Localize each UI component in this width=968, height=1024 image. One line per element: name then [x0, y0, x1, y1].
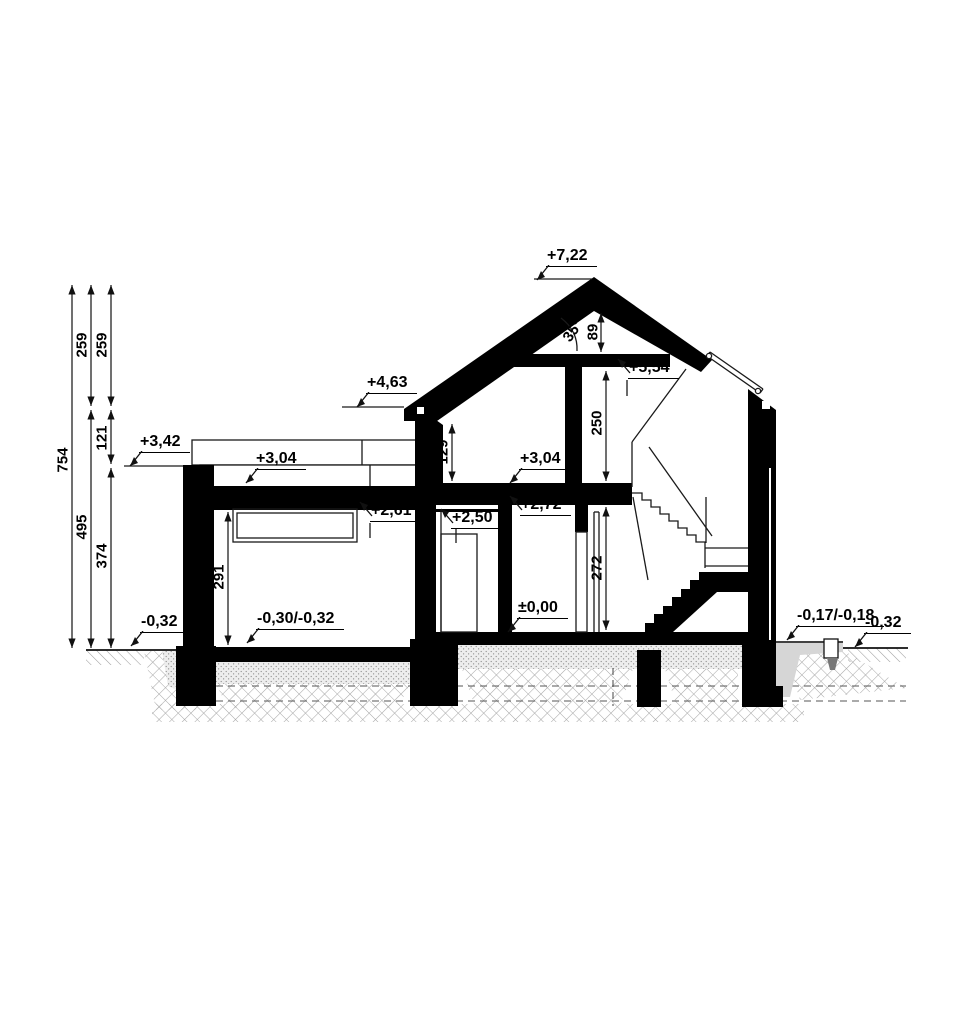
drain-channel — [824, 639, 838, 658]
dim-lower-right: 374 — [95, 543, 110, 568]
level-vestibule-ceiling: +2,50 — [451, 510, 502, 529]
dim-upper-right: 259 — [95, 332, 110, 357]
level-terrain-right: -0,32 — [864, 615, 911, 634]
level-garage-roof-slab: +3,04 — [255, 451, 306, 470]
stair-landing-outline — [705, 548, 748, 566]
level-eaves: +4,63 — [366, 375, 417, 394]
level-attic-floor: +3,04 — [519, 451, 570, 470]
hall-door-frame — [576, 532, 587, 632]
level-garage-floor: -0,30/-0,32 — [256, 611, 344, 630]
dim-middle-right: 121 — [95, 425, 110, 450]
level-garage-parapet: +3,42 — [139, 434, 190, 453]
level-ground-floor: ±0,00 — [517, 600, 568, 619]
stair-flight-cut — [645, 572, 748, 632]
structure-cut — [176, 277, 783, 707]
dim-lower-left: 495 — [75, 514, 90, 539]
dim-ground-floor: 272 — [590, 555, 605, 580]
dim-total-height: 754 — [56, 447, 71, 472]
garage-window — [233, 509, 357, 542]
wall-right — [748, 389, 776, 645]
level-garage-window-top: +2,61 — [370, 503, 421, 522]
dim-upper-left: 259 — [75, 332, 90, 357]
roof-window — [706, 352, 763, 394]
dim-garage-height: 291 — [212, 564, 227, 589]
dim-attic-room: 250 — [590, 410, 605, 435]
level-collar-ceiling: +5,54 — [628, 360, 679, 379]
level-terrain-left: -0,32 — [140, 614, 187, 633]
section-sheet: +7,22 +4,63 +3,42 +3,04 +3,04 +2,61 +2,5… — [0, 0, 968, 1024]
level-ridge: +7,22 — [546, 248, 597, 267]
stair-flight-outline — [632, 493, 705, 568]
vestibule-door — [441, 534, 477, 632]
dim-knee-wall: 129 — [436, 439, 451, 464]
stair-railing-line — [649, 447, 712, 536]
dim-ridge-collar: 89 — [586, 324, 601, 341]
level-hall-ceiling: +2,72 — [520, 497, 571, 516]
